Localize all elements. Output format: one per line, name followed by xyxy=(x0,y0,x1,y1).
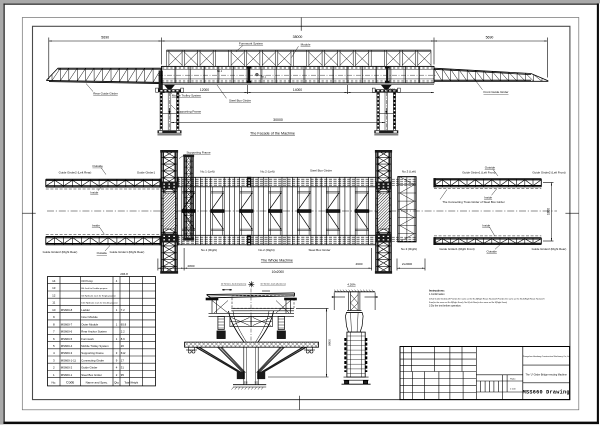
svg-text:MS660-3: MS660-3 xyxy=(61,351,73,355)
svg-text:MS660-2: MS660-2 xyxy=(61,366,73,370)
svg-text:Connecting Girder: Connecting Girder xyxy=(81,358,104,362)
svg-text:Outside: Outside xyxy=(92,164,103,168)
svg-text:13: 13 xyxy=(52,286,56,290)
svg-text:5690: 5690 xyxy=(486,35,494,39)
svg-text:10x2000: 10x2000 xyxy=(272,270,284,274)
svg-text:No.2 (Left): No.2 (Left) xyxy=(260,169,274,173)
svg-text:7.2: 7.2 xyxy=(121,308,125,312)
svg-text:2800: 2800 xyxy=(188,264,195,268)
svg-text:31: 31 xyxy=(121,366,125,370)
svg-text:3.Do the test before operation: 3.Do the test before operation. xyxy=(429,305,462,308)
svg-text:Inner Module: Inner Module xyxy=(81,315,98,319)
svg-text:MSS660 Drawing: MSS660 Drawing xyxy=(523,390,570,396)
svg-text:12000: 12000 xyxy=(386,88,395,92)
svg-text:MS660-7: MS660-7 xyxy=(61,322,73,326)
svg-text:No.1 (Left): No.1 (Left) xyxy=(200,169,214,173)
svg-text:14000: 14000 xyxy=(293,88,302,92)
svg-text:Mobile Trolley System: Mobile Trolley System xyxy=(81,344,109,348)
svg-text:MS660-1-11: MS660-1-11 xyxy=(61,358,77,362)
svg-text:80t Jack for Double-purpose: 80t Jack for Double-purpose xyxy=(81,287,108,290)
svg-text:Rear Anchor System: Rear Anchor System xyxy=(81,330,107,334)
svg-text:1:100: 1:100 xyxy=(510,389,516,391)
svg-text:2.Rail Guide Girder(Left Front: 2.Rail Guide Girder(Left Front)is the sa… xyxy=(429,297,545,300)
svg-text:Ratio: Ratio xyxy=(510,378,516,381)
svg-text:The 'U' Girder Bridge-erecting: The 'U' Girder Bridge-erecting Machine xyxy=(526,374,568,377)
svg-text:Guide Girder2 (Left Front): Guide Girder2 (Left Front) xyxy=(532,171,565,175)
svg-text:65.8: 65.8 xyxy=(121,322,127,326)
svg-text:Instructions:: Instructions: xyxy=(429,288,445,292)
svg-text:Outside: Outside xyxy=(487,249,498,253)
svg-text:Formwork System: Formwork System xyxy=(239,42,264,46)
svg-text:Guide Girder2 (Left Rear): Guide Girder2 (Left Rear) xyxy=(59,170,92,174)
svg-text:Inside: Inside xyxy=(482,223,490,227)
svg-text:Module: Module xyxy=(301,42,311,46)
svg-text:No.1: No.1 xyxy=(217,70,223,73)
svg-text:The Connecting Truss Girder of: The Connecting Truss Girder of Steel Box… xyxy=(442,200,504,204)
svg-text:Steel Box Girder: Steel Box Girder xyxy=(308,248,330,252)
svg-text:50t Hydraulic Jack for Single-: 50t Hydraulic Jack for Single-purpose xyxy=(81,294,116,297)
svg-text:Supporting Frame: Supporting Frame xyxy=(81,351,104,355)
svg-text:MS660-1: MS660-1 xyxy=(61,373,73,377)
svg-text:No.: No. xyxy=(51,380,56,384)
svg-text:10 Tonnes Jack (4 pieces): 10 Tonnes Jack (4 pieces) xyxy=(260,284,286,286)
svg-text:4.26%: 4.26% xyxy=(347,283,356,287)
svg-text:Inside: Inside xyxy=(484,195,492,199)
svg-text:Outer Module: Outer Module xyxy=(81,322,98,326)
svg-text:Steel Box Girder: Steel Box Girder xyxy=(310,168,332,172)
svg-text:1800: 1800 xyxy=(547,208,551,215)
svg-text:Supporting Frame: Supporting Frame xyxy=(177,109,201,113)
svg-text:1.Confirmation: 1.Confirmation xyxy=(429,293,445,296)
svg-text:12000: 12000 xyxy=(200,88,209,92)
svg-text:Guide Girder2 (Right Rear): Guide Girder2 (Right Rear) xyxy=(43,250,78,254)
svg-text:10 Tonnes Jack (4 pieces): 10 Tonnes Jack (4 pieces) xyxy=(221,284,247,286)
svg-text:Guide Girder2 (Right Rear): Guide Girder2 (Right Rear) xyxy=(532,247,567,251)
svg-text:Inside: Inside xyxy=(90,191,98,195)
svg-text:12: 12 xyxy=(52,293,56,297)
svg-text:100t Hydraulic Jack for Double: 100t Hydraulic Jack for Double-purpose xyxy=(81,302,118,305)
svg-text:296.8: 296.8 xyxy=(120,272,128,276)
svg-text:14: 14 xyxy=(52,279,56,283)
svg-text:Inside: Inside xyxy=(92,223,100,227)
svg-text:Guide Girder1 (Left Front): Guide Girder1 (Left Front) xyxy=(462,171,495,175)
svg-text:MS660-8: MS660-8 xyxy=(61,308,73,312)
svg-text:Code: Code xyxy=(66,380,74,384)
svg-text:The Facade of the Machine: The Facade of the Machine xyxy=(250,131,295,135)
svg-text:Steel Box Girder: Steel Box Girder xyxy=(229,98,251,102)
svg-text:17: 17 xyxy=(121,358,125,362)
svg-text:95: 95 xyxy=(121,373,125,377)
svg-text:4600: 4600 xyxy=(356,262,363,266)
svg-text:Formwork: Formwork xyxy=(81,337,94,341)
svg-text:Guide Girder: Guide Girder xyxy=(81,366,97,370)
svg-text:No.2 (Right): No.2 (Right) xyxy=(258,248,274,252)
svg-text:MS660-6: MS660-6 xyxy=(61,330,73,334)
svg-text:38000: 38000 xyxy=(293,35,303,39)
svg-text:8.9: 8.9 xyxy=(121,337,125,341)
svg-text:Front Guide Girder: Front Guide Girder xyxy=(483,90,508,94)
svg-text:MS660-5: MS660-5 xyxy=(61,337,73,341)
svg-text:Supporting Frame: Supporting Frame xyxy=(186,151,210,155)
svg-text:Front)is the same as No.3(Righ: Front)is the same as No.3(Right Front); … xyxy=(429,301,507,304)
svg-text:Outside: Outside xyxy=(485,166,496,170)
svg-text:Guide Girder1 (Right Front): Guide Girder1 (Right Front) xyxy=(439,247,474,251)
svg-text:2.2: 2.2 xyxy=(121,330,125,334)
svg-text:MS660-4: MS660-4 xyxy=(61,344,73,348)
svg-text:Name and Spec.: Name and Spec. xyxy=(86,380,109,384)
svg-text:2x2000: 2x2000 xyxy=(402,262,412,266)
svg-text:Zhengzhou Huadong Construction: Zhengzhou Huadong Construction Machinery… xyxy=(523,355,570,358)
svg-text:Mobile Trolley System: Mobile Trolley System xyxy=(172,94,202,98)
svg-text:Qty: Qty xyxy=(114,380,119,384)
svg-text:11: 11 xyxy=(52,301,55,305)
svg-text:5690: 5690 xyxy=(101,35,109,39)
svg-text:Ladder: Ladder xyxy=(81,308,90,312)
svg-text:612: 612 xyxy=(121,351,126,355)
svg-text:The Whole Machine: The Whole Machine xyxy=(261,259,293,263)
svg-text:9800: 9800 xyxy=(328,339,332,346)
svg-text:30000: 30000 xyxy=(273,118,283,122)
svg-text:No.3 (Left): No.3 (Left) xyxy=(402,169,416,173)
svg-text:Guide Girder1: Guide Girder1 xyxy=(137,170,156,174)
svg-text:No.2: No.2 xyxy=(261,75,267,78)
svg-text:No.1 (Right): No.1 (Right) xyxy=(201,248,217,252)
svg-text:26: 26 xyxy=(121,344,125,348)
svg-text:Oil Pump: Oil Pump xyxy=(81,279,93,283)
svg-text:Rear Guide Girder: Rear Guide Girder xyxy=(93,92,118,96)
svg-text:10: 10 xyxy=(52,308,56,312)
svg-text:Total Weight: Total Weight xyxy=(124,381,138,384)
svg-text:Steel Box Girder: Steel Box Girder xyxy=(81,373,102,377)
svg-text:No.3 (Right): No.3 (Right) xyxy=(401,247,417,251)
svg-text:Outside: Outside xyxy=(97,251,108,255)
svg-text:Guide Girder1 (Right Rear): Guide Girder1 (Right Rear) xyxy=(110,250,145,254)
